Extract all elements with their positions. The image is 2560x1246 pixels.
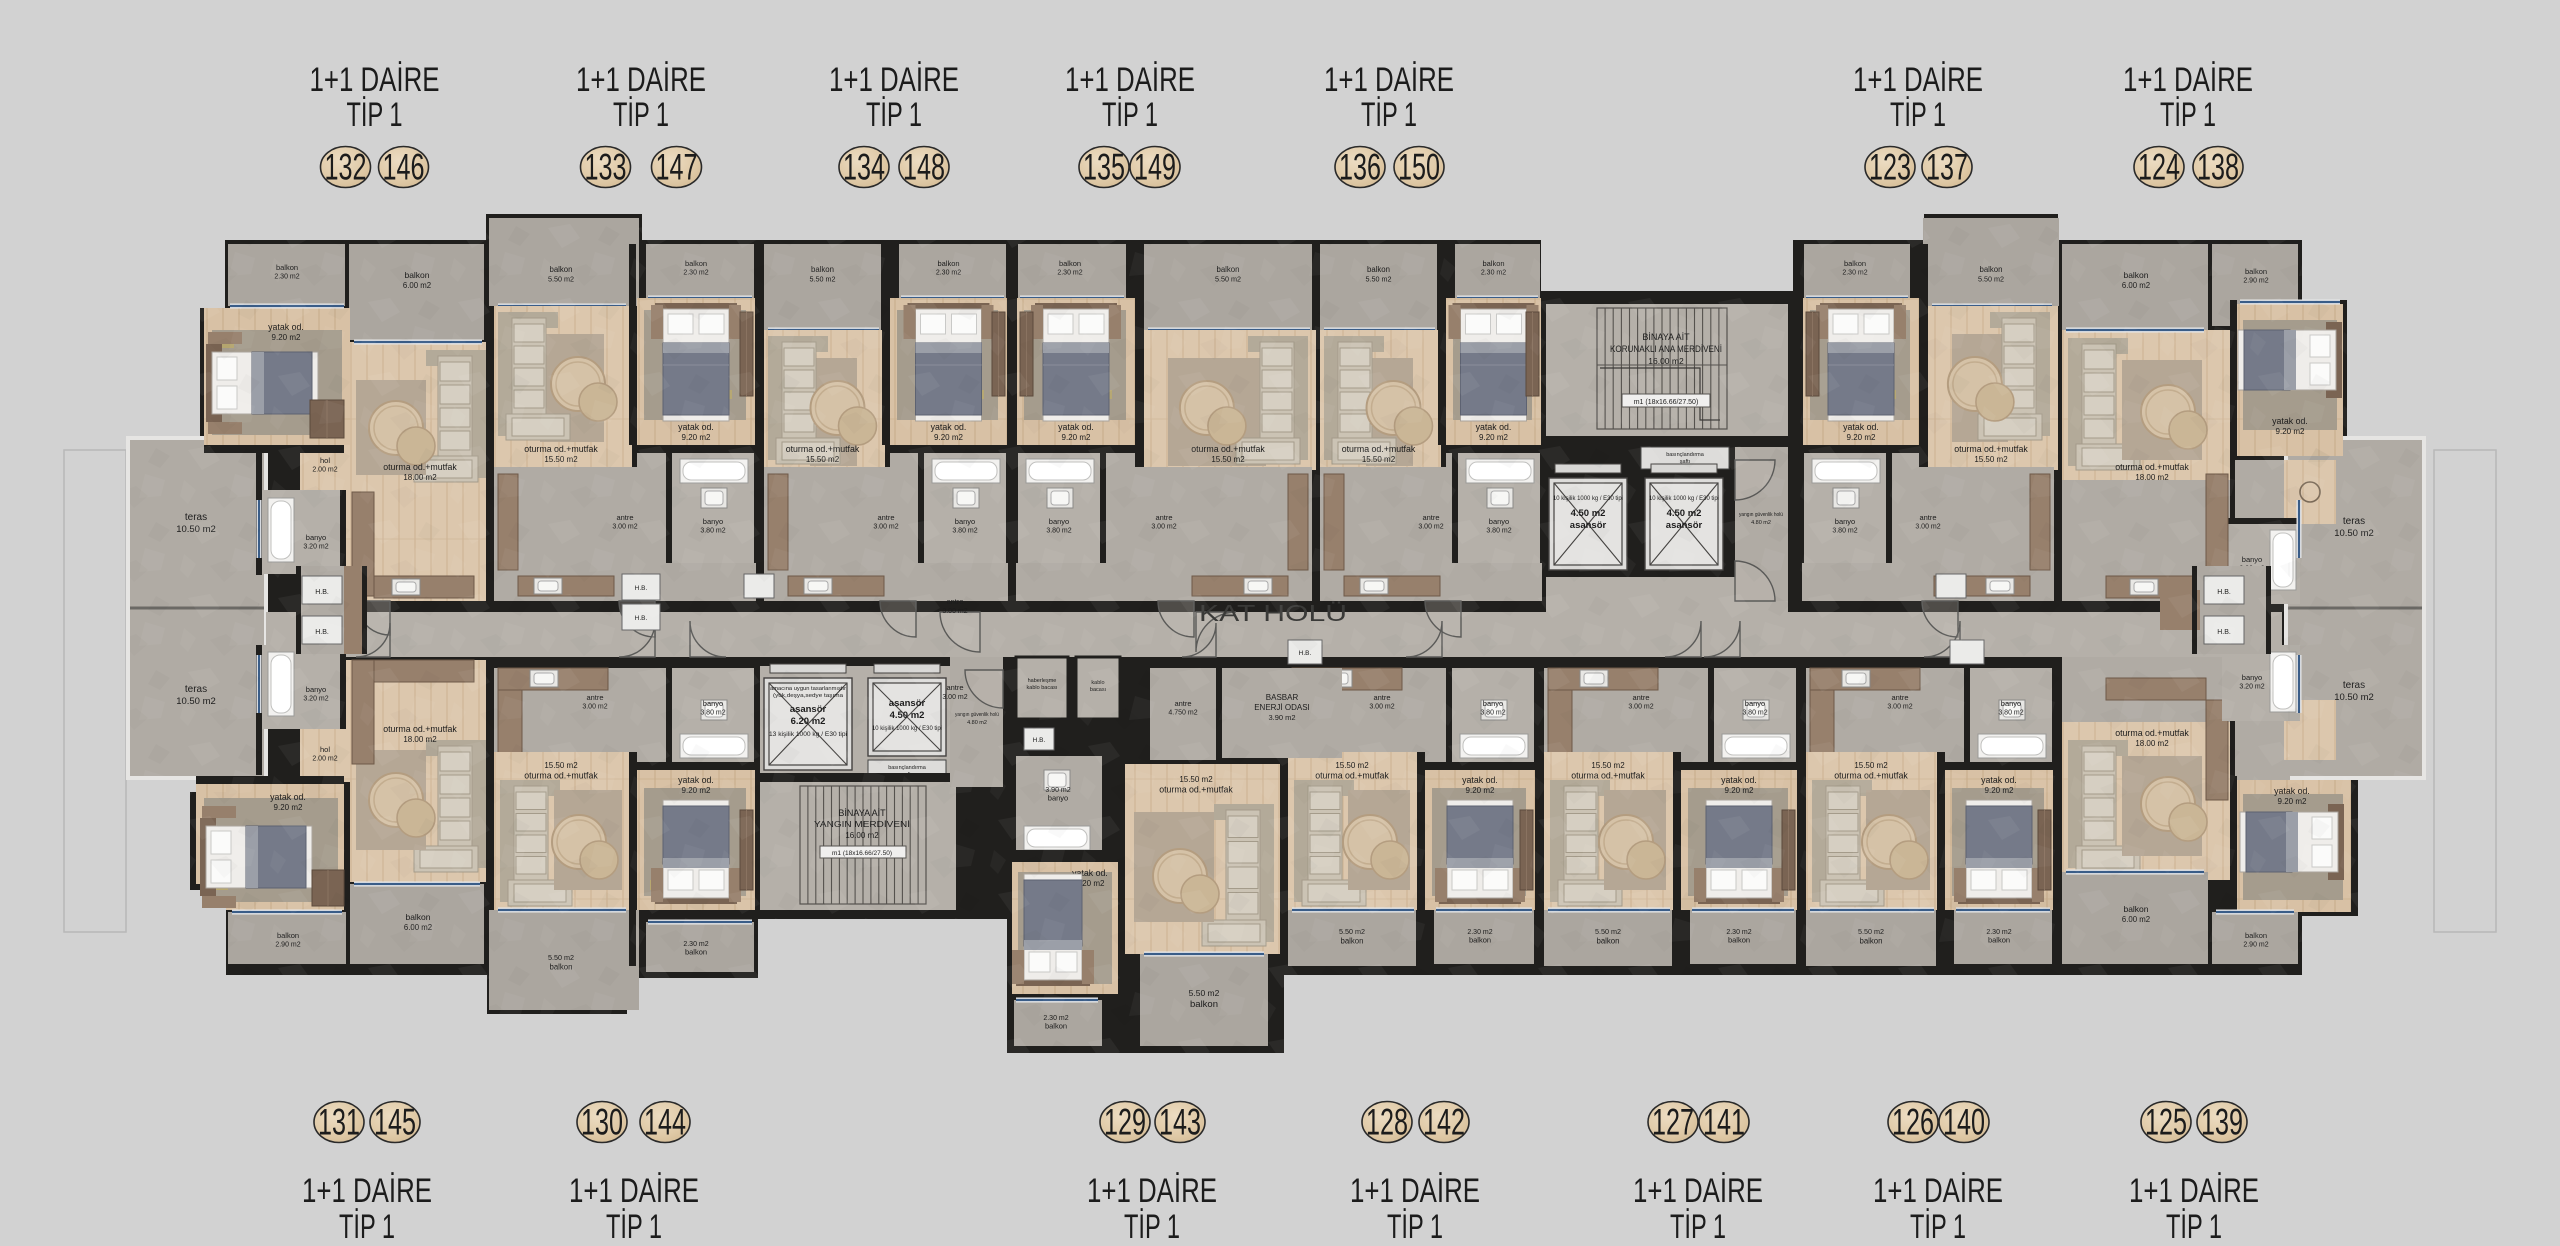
svg-text:TİP 1: TİP 1 (2166, 1208, 2222, 1246)
svg-text:1+1 DAİRE: 1+1 DAİRE (829, 61, 959, 99)
svg-text:1+1 DAİRE: 1+1 DAİRE (1350, 1172, 1480, 1210)
svg-text:1+1 DAİRE: 1+1 DAİRE (576, 61, 706, 99)
svg-text:1+1 DAİRE: 1+1 DAİRE (302, 1172, 432, 1210)
svg-text:1+1 DAİRE: 1+1 DAİRE (1324, 61, 1454, 99)
svg-text:131: 131 (318, 1102, 360, 1143)
svg-text:TİP 1: TİP 1 (1890, 96, 1946, 134)
svg-text:147: 147 (656, 147, 698, 188)
svg-text:134: 134 (843, 147, 885, 188)
svg-text:146: 146 (383, 147, 425, 188)
svg-text:TİP 1: TİP 1 (1102, 96, 1158, 134)
svg-text:137: 137 (1926, 147, 1968, 188)
svg-text:TİP 1: TİP 1 (2160, 96, 2216, 134)
svg-text:1+1 DAİRE: 1+1 DAİRE (2129, 1172, 2259, 1210)
svg-text:1+1 DAİRE: 1+1 DAİRE (569, 1172, 699, 1210)
svg-text:TİP 1: TİP 1 (1124, 1208, 1180, 1246)
svg-text:TİP 1: TİP 1 (1910, 1208, 1966, 1246)
svg-text:1+1 DAİRE: 1+1 DAİRE (1065, 61, 1195, 99)
svg-text:1+1 DAİRE: 1+1 DAİRE (1873, 1172, 2003, 1210)
svg-text:TİP 1: TİP 1 (347, 96, 403, 134)
svg-text:125: 125 (2145, 1102, 2187, 1143)
svg-text:144: 144 (644, 1102, 686, 1143)
svg-text:130: 130 (581, 1102, 623, 1143)
svg-text:TİP 1: TİP 1 (606, 1208, 662, 1246)
svg-text:129: 129 (1104, 1102, 1146, 1143)
svg-text:135: 135 (1083, 147, 1125, 188)
svg-text:142: 142 (1423, 1102, 1465, 1143)
svg-text:128: 128 (1366, 1102, 1408, 1143)
svg-text:127: 127 (1652, 1102, 1694, 1143)
svg-text:149: 149 (1134, 147, 1176, 188)
svg-text:133: 133 (585, 147, 627, 188)
svg-text:1+1 DAİRE: 1+1 DAİRE (310, 61, 440, 99)
svg-text:TİP 1: TİP 1 (613, 96, 669, 134)
svg-text:145: 145 (374, 1102, 416, 1143)
svg-text:139: 139 (2201, 1102, 2243, 1143)
svg-text:TİP 1: TİP 1 (866, 96, 922, 134)
svg-text:126: 126 (1892, 1102, 1934, 1143)
svg-text:123: 123 (1869, 147, 1911, 188)
svg-text:1+1 DAİRE: 1+1 DAİRE (1087, 1172, 1217, 1210)
svg-text:1+1 DAİRE: 1+1 DAİRE (2123, 61, 2253, 99)
svg-text:141: 141 (1703, 1102, 1745, 1143)
svg-text:143: 143 (1159, 1102, 1201, 1143)
svg-text:138: 138 (2197, 147, 2239, 188)
svg-text:132: 132 (325, 147, 367, 188)
svg-text:1+1 DAİRE: 1+1 DAİRE (1633, 1172, 1763, 1210)
svg-text:140: 140 (1943, 1102, 1985, 1143)
svg-text:TİP 1: TİP 1 (339, 1208, 395, 1246)
svg-text:124: 124 (2138, 147, 2180, 188)
svg-text:150: 150 (1398, 147, 1440, 188)
svg-text:1+1 DAİRE: 1+1 DAİRE (1853, 61, 1983, 99)
svg-text:TİP 1: TİP 1 (1361, 96, 1417, 134)
svg-text:TİP 1: TİP 1 (1387, 1208, 1443, 1246)
svg-text:148: 148 (903, 147, 945, 188)
svg-text:136: 136 (1339, 147, 1381, 188)
svg-text:TİP 1: TİP 1 (1670, 1208, 1726, 1246)
